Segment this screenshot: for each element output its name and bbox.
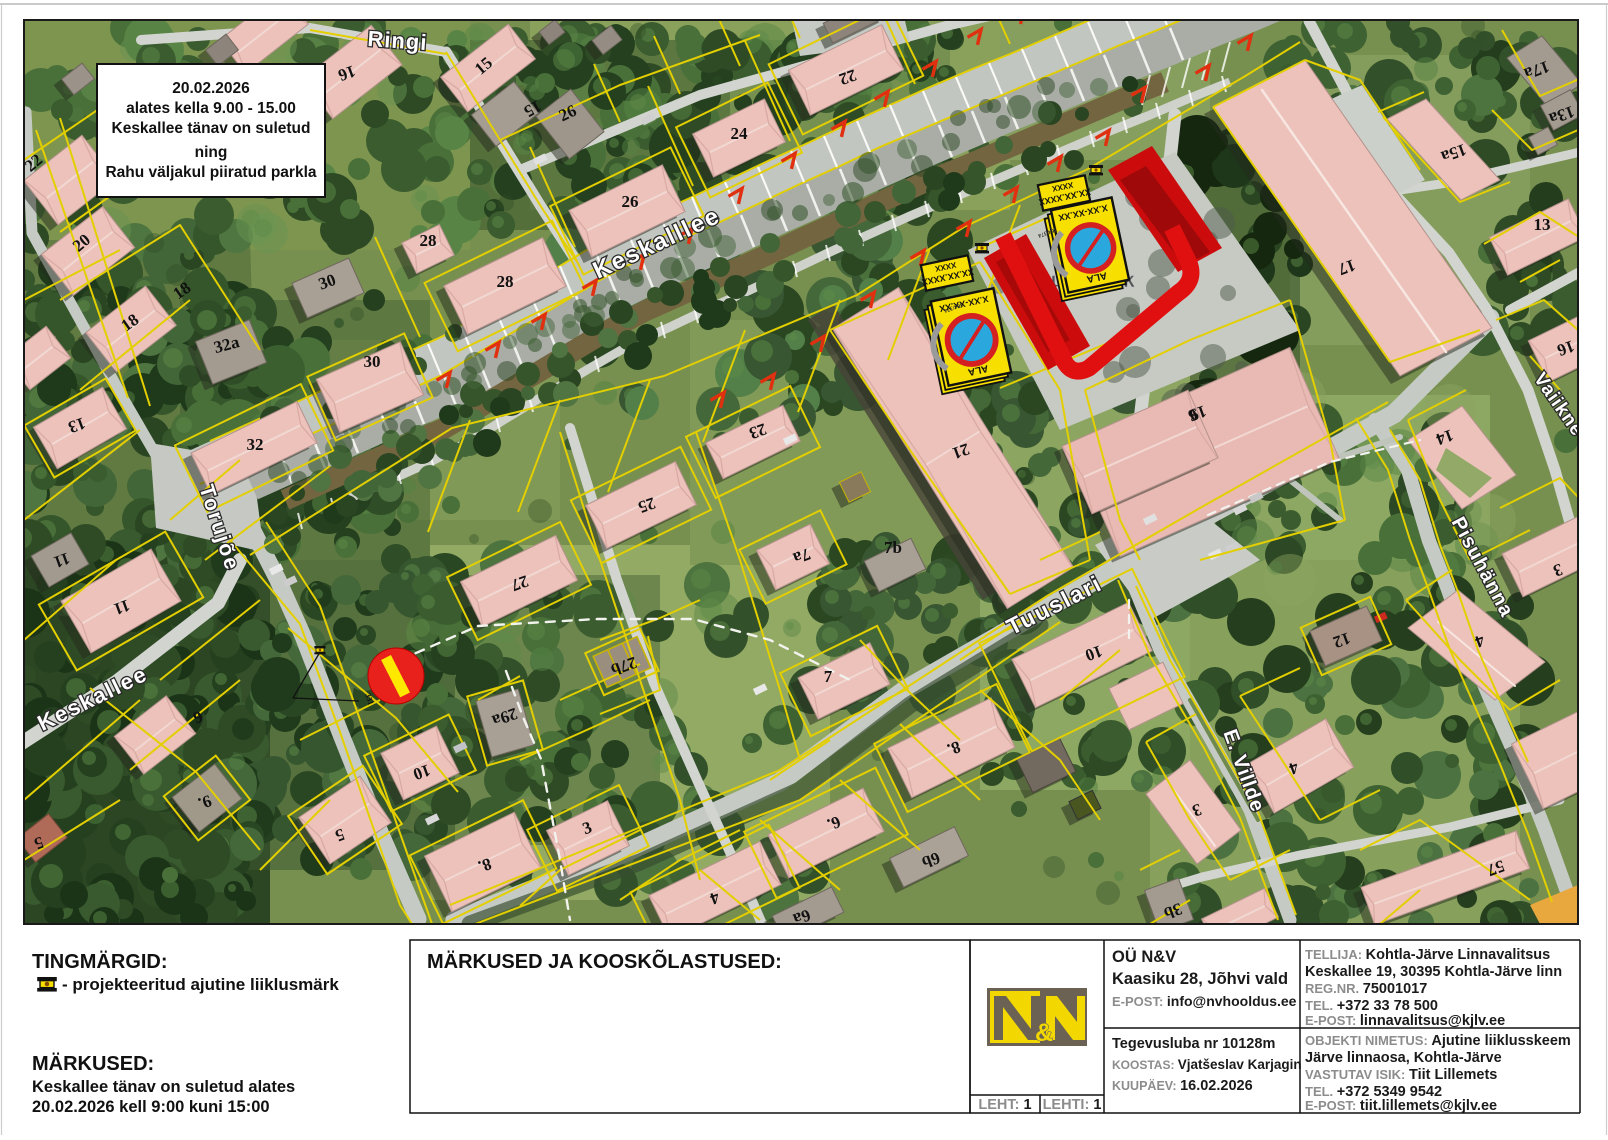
svg-text:Rahu väljakul piiratud parkla: Rahu väljakul piiratud parkla xyxy=(105,164,316,181)
svg-text:OÜ N&V: OÜ N&V xyxy=(1112,947,1176,966)
svg-text:LEHTI: 1: LEHTI: 1 xyxy=(1043,1097,1102,1113)
svg-text:7b: 7b xyxy=(884,538,902,557)
svg-text:- projekteeritud ajutine liikl: - projekteeritud ajutine liiklusmärk xyxy=(62,975,339,994)
svg-text:TELLIJA: Kohtla-Järve Linnaval: TELLIJA: Kohtla-Järve Linnavalitsus xyxy=(1305,947,1550,963)
svg-text:E-POST: info@nvhooldus.ee: E-POST: info@nvhooldus.ee xyxy=(1112,993,1297,1009)
svg-text:OBJEKTI NIMETUS: Ajutine liikl: OBJEKTI NIMETUS: Ajutine liiklusskeem xyxy=(1305,1033,1571,1049)
svg-text:26: 26 xyxy=(622,192,639,211)
svg-text:24: 24 xyxy=(731,124,749,143)
svg-text:KUUPÄEV: 16.02.2026: KUUPÄEV: 16.02.2026 xyxy=(1112,1078,1253,1094)
svg-text:20.02.2026: 20.02.2026 xyxy=(172,80,250,97)
svg-text:20.02.2026 kell 9:00 kuni 15:0: 20.02.2026 kell 9:00 kuni 15:00 xyxy=(32,1098,270,1116)
svg-text:28: 28 xyxy=(420,231,437,250)
svg-text:7: 7 xyxy=(824,667,833,686)
svg-text:MÄRKUSED:: MÄRKUSED: xyxy=(32,1052,154,1075)
svg-text:TINGMÄRGID:: TINGMÄRGID: xyxy=(32,950,168,973)
svg-text:TEL. +372 33 78 500: TEL. +372 33 78 500 xyxy=(1305,998,1438,1014)
svg-text:&: & xyxy=(1035,1019,1053,1047)
svg-text:Keskallee tänav on suletud ala: Keskallee tänav on suletud alates xyxy=(32,1078,295,1096)
svg-text:Ringi: Ringi xyxy=(367,26,429,55)
svg-text:E-POST: tiit.lillemets@kjlv.ee: E-POST: tiit.lillemets@kjlv.ee xyxy=(1305,1098,1497,1114)
svg-text:REG.NR. 75001017: REG.NR. 75001017 xyxy=(1305,981,1427,997)
svg-text:Keskallee 19, 30395 Kohtla-Jär: Keskallee 19, 30395 Kohtla-Järve linn xyxy=(1305,964,1562,980)
svg-text:E-POST: linnavalitsus@kjlv.ee: E-POST: linnavalitsus@kjlv.ee xyxy=(1305,1013,1505,1029)
svg-text:Järve linnaosa, Kohtla-Järve: Järve linnaosa, Kohtla-Järve xyxy=(1305,1050,1502,1066)
svg-text:Kaasiku 28, Jõhvi vald: Kaasiku 28, Jõhvi vald xyxy=(1112,970,1288,988)
svg-text:LEHT: 1: LEHT: 1 xyxy=(978,1097,1031,1113)
svg-text:13: 13 xyxy=(1534,215,1551,234)
svg-text:Tegevusluba nr 10128m: Tegevusluba nr 10128m xyxy=(1112,1036,1275,1052)
svg-text:30: 30 xyxy=(364,352,381,371)
svg-text:ning: ning xyxy=(195,144,228,161)
svg-text:alates kella 9.00 - 15.00: alates kella 9.00 - 15.00 xyxy=(126,100,296,117)
svg-text:32: 32 xyxy=(247,435,264,454)
svg-text:KOOSTAS: Vjatšeslav Karjagin: KOOSTAS: Vjatšeslav Karjagin xyxy=(1112,1057,1302,1072)
svg-text:MÄRKUSED JA KOOSKÕLASTUSED:: MÄRKUSED JA KOOSKÕLASTUSED: xyxy=(427,949,782,973)
svg-text:Keskallee tänav on suletud: Keskallee tänav on suletud xyxy=(112,120,311,137)
svg-text:28: 28 xyxy=(497,272,514,291)
svg-text:VASTUTAV ISIK: Tiit Lillemets: VASTUTAV ISIK: Tiit Lillemets xyxy=(1305,1067,1497,1083)
